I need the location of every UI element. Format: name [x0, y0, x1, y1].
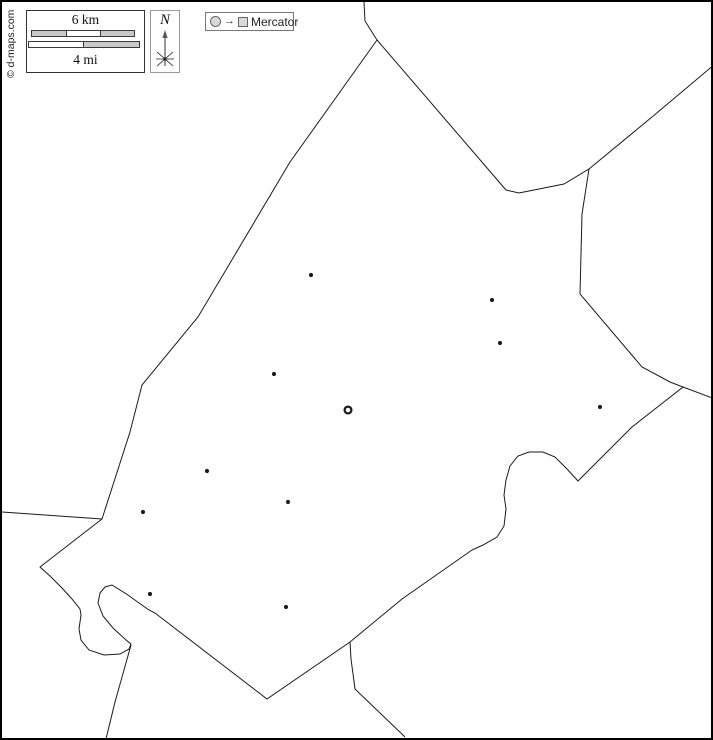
- scale-km-bar: [31, 30, 135, 37]
- north-arrow-icon: [153, 29, 177, 69]
- scale-km-segment: [66, 31, 101, 36]
- scale-mi-label: 4 mi: [27, 52, 144, 68]
- legend-projection: → Mercator: [205, 12, 294, 31]
- north-compass: N: [150, 10, 180, 73]
- circle-icon: [210, 16, 221, 27]
- boundary-line-east: [683, 387, 711, 399]
- north-label: N: [151, 11, 179, 29]
- scale-mi-bar: [28, 41, 140, 48]
- city-dot-icon: [205, 469, 209, 473]
- scale-km-segment: [101, 31, 134, 36]
- city-dot-icon: [148, 592, 152, 596]
- city-dot-icon: [490, 298, 494, 302]
- projection-label: Mercator: [251, 15, 298, 29]
- city-dot-icon: [286, 500, 290, 504]
- city-dot-icon: [272, 372, 276, 376]
- city-dot-icon: [284, 605, 288, 609]
- boundary-line-southwest: [106, 645, 131, 738]
- city-dot-icon: [141, 510, 145, 514]
- arrow-icon: →: [224, 16, 235, 27]
- boundary-line-northeast: [589, 64, 711, 169]
- city-dot-icon: [498, 341, 502, 345]
- region-outline: [40, 40, 683, 699]
- map-svg: [2, 2, 711, 738]
- boundary-line-west: [2, 512, 102, 519]
- scale-bar: 6 km 4 mi: [26, 10, 145, 73]
- map-canvas: © d-maps.com 6 km 4 mi N → Mercator: [0, 0, 713, 740]
- boundary-line-north: [364, 2, 377, 40]
- capital-ring-icon: [345, 407, 352, 414]
- boundary-line-southeast: [350, 642, 405, 737]
- scale-mi-segment: [29, 42, 84, 47]
- city-dot-icon: [309, 273, 313, 277]
- scale-km-label: 6 km: [27, 12, 144, 28]
- square-icon: [238, 17, 248, 27]
- scale-km-segment: [32, 31, 66, 36]
- city-dot-icon: [598, 405, 602, 409]
- scale-mi-segment: [84, 42, 139, 47]
- copyright-label: © d-maps.com: [5, 10, 17, 78]
